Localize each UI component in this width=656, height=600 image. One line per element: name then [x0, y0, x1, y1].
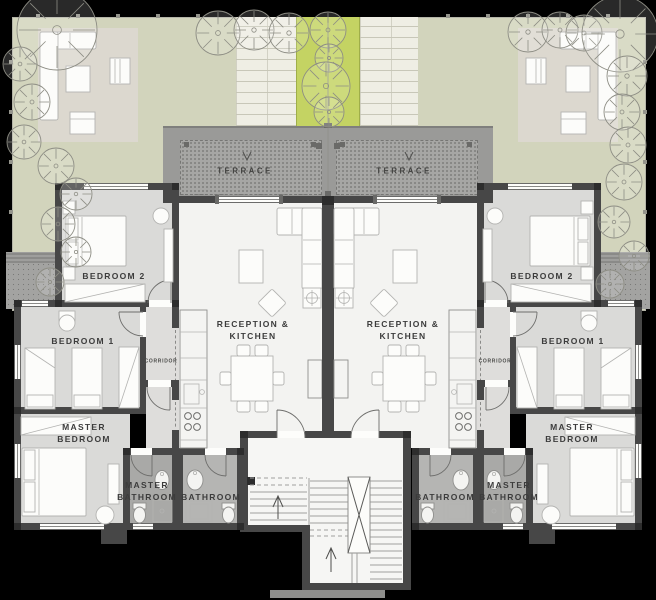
bedroom1-label-right: BEDROOM 1 [541, 336, 604, 348]
corridor-label-left: CORRIDOR [145, 359, 178, 366]
bedroom2-label-right: BEDROOM 2 [510, 271, 573, 283]
bedroom2-label-left: BEDROOM 2 [82, 271, 145, 283]
reception-label-left: RECEPTION & KITCHEN [217, 319, 289, 343]
reception-furniture [220, 208, 322, 412]
bathroom-label-left: BATHROOM [181, 492, 241, 504]
master-bedroom-label-right: MASTER BEDROOM [545, 422, 599, 446]
floor-plan: TERRACE TERRACE BEDROOM 2 BEDROOM 2 BEDR… [0, 0, 656, 600]
terrace-label-right: TERRACE [376, 165, 431, 176]
right-unit [322, 32, 642, 544]
corridor-label-right: CORRIDOR [479, 359, 512, 366]
master-bedroom-label-left: MASTER BEDROOM [57, 422, 111, 446]
master-bathroom-label-left: MASTER BATHROOM [117, 480, 177, 504]
bathroom-label-right: BATHROOM [415, 492, 475, 504]
stair-direction-arrow [326, 548, 336, 572]
terrace-level-mark [243, 152, 251, 160]
plan-graphics [0, 0, 656, 600]
reception-label-right: RECEPTION & KITCHEN [367, 319, 439, 343]
master-bathroom-label-right: MASTER BATHROOM [479, 480, 539, 504]
terrace-label-left: TERRACE [217, 165, 272, 176]
bedroom1-label-left: BEDROOM 1 [51, 336, 114, 348]
bedroom1-furniture [25, 311, 139, 409]
